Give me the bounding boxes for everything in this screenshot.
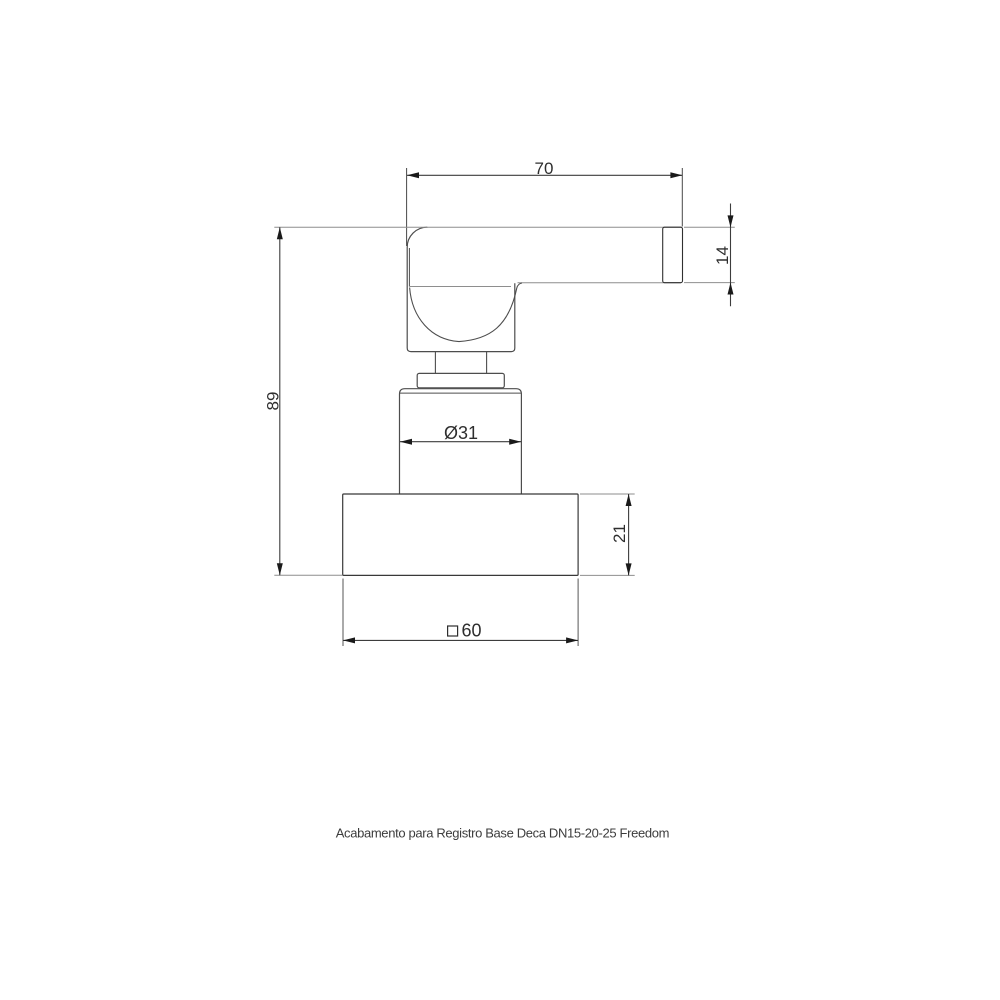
svg-text:14: 14 [713, 246, 732, 265]
svg-text:60: 60 [462, 621, 482, 641]
svg-text:89: 89 [263, 392, 282, 411]
svg-text:Ø31: Ø31 [444, 423, 478, 443]
svg-text:Acabamento para Registro Base: Acabamento para Registro Base Deca DN15-… [336, 826, 669, 841]
svg-text:21: 21 [610, 524, 629, 543]
svg-text:70: 70 [535, 159, 554, 178]
